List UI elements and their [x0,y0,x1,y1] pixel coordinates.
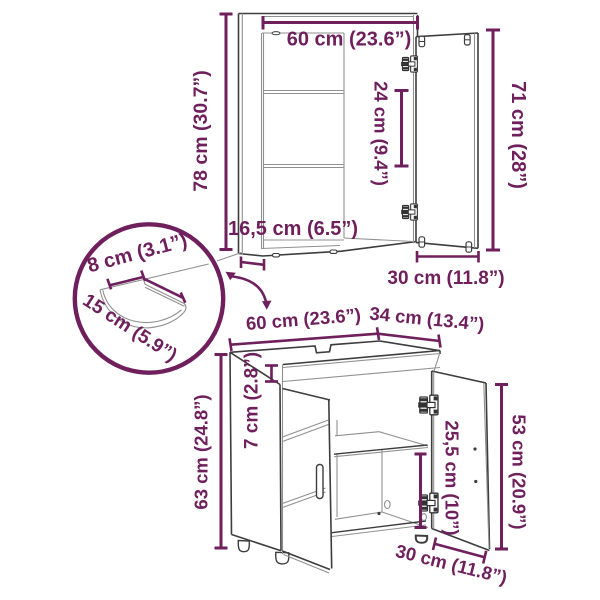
svg-text:53 cm (20.9”): 53 cm (20.9”) [509,414,530,529]
svg-text:78 cm (30.7”): 78 cm (30.7”) [190,70,212,191]
svg-text:34 cm (13.4”): 34 cm (13.4”) [369,303,486,335]
svg-text:30 cm (11.8”): 30 cm (11.8”) [387,268,504,289]
svg-text:16,5 cm (6.5”): 16,5 cm (6.5”) [228,218,358,240]
svg-text:60 cm (23.6”): 60 cm (23.6”) [287,29,412,51]
svg-text:60 cm (23.6”): 60 cm (23.6”) [245,304,361,334]
svg-text:71 cm (28”): 71 cm (28”) [507,81,529,189]
svg-text:24 cm (9.4”): 24 cm (9.4”) [371,81,392,186]
svg-text:7 cm (2.8”): 7 cm (2.8”) [241,352,262,449]
svg-text:63 cm (24.8”): 63 cm (24.8”) [191,394,212,509]
svg-text:25,5 cm (10”): 25,5 cm (10”) [442,420,463,535]
